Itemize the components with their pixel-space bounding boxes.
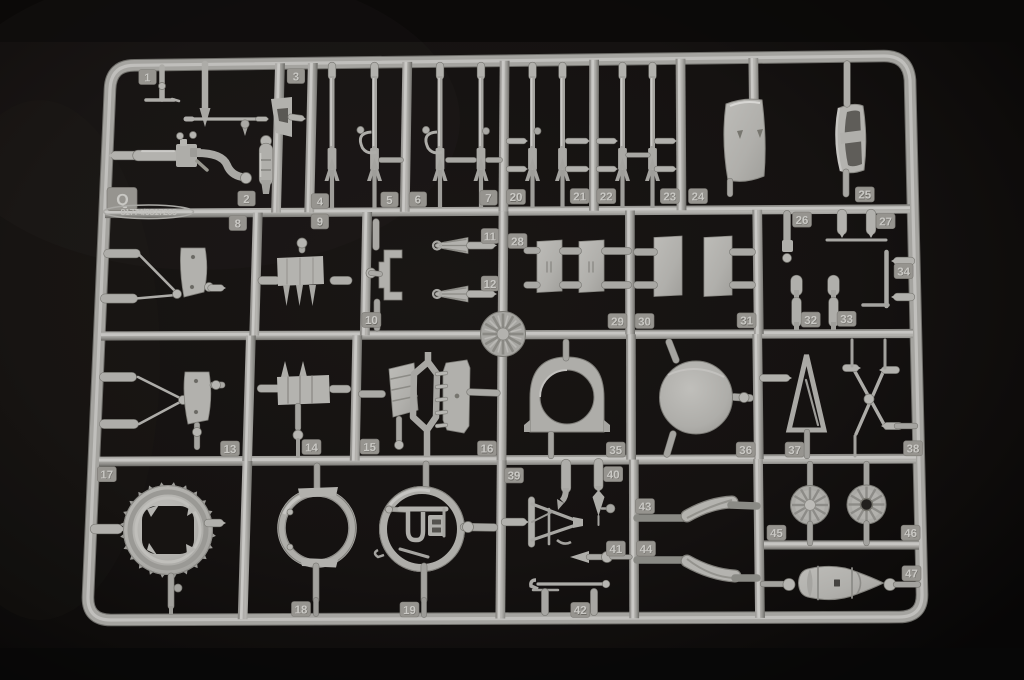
svg-text:42: 42: [574, 605, 587, 617]
svg-text:23: 23: [663, 191, 676, 203]
svg-text:32: 32: [804, 315, 817, 327]
svg-text:17: 17: [100, 470, 113, 482]
svg-text:37: 37: [788, 445, 801, 457]
svg-text:9: 9: [317, 217, 323, 229]
svg-text:33: 33: [840, 314, 853, 326]
svg-text:19: 19: [403, 605, 416, 617]
svg-text:34: 34: [897, 266, 910, 278]
svg-text:45: 45: [770, 528, 783, 540]
svg-text:13: 13: [224, 444, 237, 456]
svg-text:16: 16: [481, 444, 494, 456]
svg-text:47: 47: [905, 569, 918, 581]
svg-text:29: 29: [611, 316, 624, 328]
svg-text:24: 24: [692, 191, 705, 203]
svg-text:10: 10: [365, 315, 378, 327]
svg-text:41: 41: [610, 544, 623, 556]
svg-text:46: 46: [904, 528, 917, 540]
svg-text:26: 26: [796, 215, 809, 227]
svg-text:81774/9817265: 81774/9817265: [121, 207, 177, 217]
svg-text:36: 36: [739, 445, 752, 457]
svg-text:35: 35: [609, 445, 622, 457]
svg-text:27: 27: [879, 217, 892, 229]
svg-text:21: 21: [573, 191, 586, 203]
svg-text:31: 31: [740, 316, 753, 328]
svg-text:25: 25: [858, 190, 871, 202]
svg-text:30: 30: [638, 316, 651, 328]
svg-text:38: 38: [907, 444, 920, 456]
svg-text:11: 11: [484, 231, 497, 243]
svg-text:5: 5: [386, 195, 393, 207]
svg-text:15: 15: [363, 442, 376, 454]
svg-text:44: 44: [640, 544, 653, 556]
svg-text:14: 14: [305, 442, 318, 454]
svg-text:2: 2: [243, 194, 249, 206]
svg-text:28: 28: [511, 236, 524, 248]
svg-text:7: 7: [485, 193, 491, 205]
svg-text:8: 8: [235, 218, 242, 230]
svg-text:39: 39: [508, 471, 521, 483]
svg-text:1: 1: [144, 72, 151, 84]
svg-text:40: 40: [607, 469, 620, 481]
svg-text:43: 43: [639, 502, 652, 514]
svg-text:3: 3: [293, 71, 299, 83]
svg-text:22: 22: [600, 191, 613, 203]
svg-text:4: 4: [317, 196, 324, 208]
svg-text:20: 20: [510, 192, 523, 204]
svg-text:6: 6: [415, 195, 421, 207]
svg-text:18: 18: [295, 604, 308, 616]
svg-text:12: 12: [484, 279, 497, 291]
